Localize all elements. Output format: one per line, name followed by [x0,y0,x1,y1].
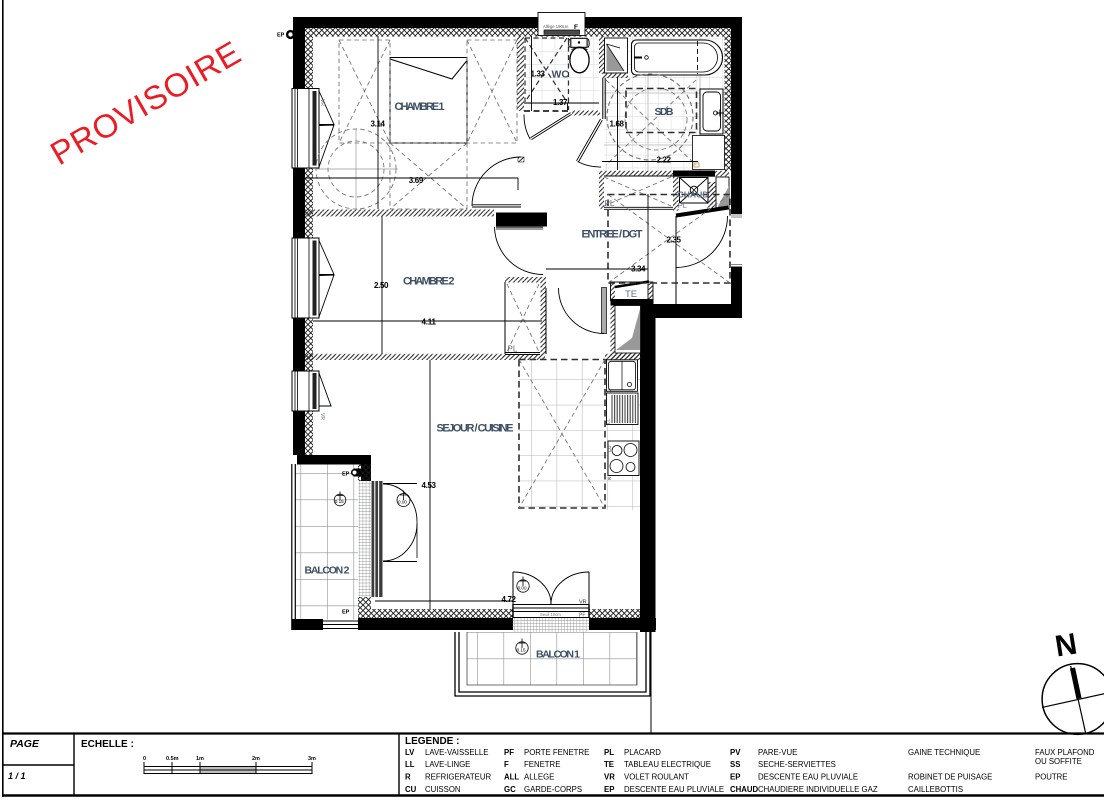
svg-text:DESCENTE EAU PLUVIALE: DESCENTE EAU PLUVIALE [758,773,858,782]
svg-text:3.34: 3.34 [631,265,646,274]
svg-text:VR: VR [579,600,587,606]
svg-text:3.14: 3.14 [371,120,386,129]
svg-text:BALCON 2: BALCON 2 [305,565,350,577]
svg-text:CUISSON: CUISSON [425,785,461,794]
svg-text:LAVE-VAISSELLE: LAVE-VAISSELLE [425,748,488,757]
svg-text:OU SOFFITE: OU SOFFITE [1035,757,1082,766]
svg-text:2.22: 2.22 [657,155,672,164]
svg-text:FAUX PLAFOND: FAUX PLAFOND [1035,748,1095,757]
svg-text:PL: PL [605,199,615,208]
svg-text:3m: 3m [308,756,316,762]
svg-text:CU: CU [607,446,612,453]
svg-text:1.68: 1.68 [610,120,625,129]
svg-text:ENTREE / DGT: ENTREE / DGT [582,229,643,241]
svg-text:1.33: 1.33 [531,70,546,79]
svg-text:PARE-VUE: PARE-VUE [758,748,797,757]
svg-text:SDB: SDB [655,106,674,118]
svg-text:GARDE-CORPS: GARDE-CORPS [524,785,582,794]
svg-text:TE: TE [625,289,637,300]
svg-text:WC: WC [552,69,570,81]
svg-text:CHAMBRE 2: CHAMBRE 2 [403,276,455,288]
svg-text:2m: 2m [252,756,260,762]
svg-text:Allège 190cm: Allège 190cm [543,24,569,29]
svg-text:VR: VR [319,99,325,106]
svg-text:EP: EP [604,785,614,794]
svg-text:EP: EP [730,773,740,782]
svg-text:0.00: 0.00 [518,585,527,590]
svg-text:TABLEAU ELECTRIQUE: TABLEAU ELECTRIQUE [624,760,711,769]
svg-text:4.72: 4.72 [502,595,517,604]
svg-text:PL: PL [604,748,614,757]
svg-text:PV: PV [730,748,741,757]
svg-text:VOLET ROULANT: VOLET ROULANT [624,773,689,782]
svg-text:EP: EP [342,610,350,616]
svg-text:PAGE: PAGE [10,738,40,750]
svg-text:CU: CU [405,785,417,794]
svg-text:1 / 1: 1 / 1 [8,771,26,781]
svg-text:LV: LV [405,748,415,757]
svg-text:PL: PL [678,201,687,210]
svg-text:3.69: 3.69 [409,176,424,185]
svg-text:PF: PF [504,748,514,757]
svg-text:GC: GC [504,785,516,794]
svg-text:ALLEGE: ALLEGE [524,773,554,782]
svg-text:CAILLEBOTTIS: CAILLEBOTTIS [908,785,963,794]
svg-text:DESCENTE EAU PLUVIALE: DESCENTE EAU PLUVIALE [624,785,724,794]
svg-text:F: F [504,760,509,769]
svg-text:BALCON 1: BALCON 1 [536,649,580,661]
svg-text:PLACARD: PLACARD [624,748,661,757]
svg-text:2.50: 2.50 [374,281,389,290]
svg-text:PORTE FENETRE: PORTE FENETRE [524,748,589,757]
svg-text:0.5m: 0.5m [166,756,179,762]
svg-text:0.15: 0.15 [517,647,526,652]
svg-text:GAINE TECHNIQUE: GAINE TECHNIQUE [908,748,980,757]
svg-text:0.00: 0.00 [398,500,407,505]
svg-text:REFRIGERATEUR: REFRIGERATEUR [425,773,492,782]
svg-text:ECHELLE :: ECHELLE : [81,739,134,750]
svg-text:PF: PF [579,613,585,619]
svg-text:TE: TE [604,760,614,769]
svg-text:Seuil 10cm: Seuil 10cm [540,612,561,617]
svg-text:CHAUD: CHAUD [730,785,759,794]
svg-text:2.35: 2.35 [667,236,682,245]
svg-text:LL: LL [606,418,611,424]
svg-text:PL: PL [508,345,518,354]
svg-text:4.11: 4.11 [422,318,437,327]
svg-text:POUTRE: POUTRE [1035,773,1068,782]
svg-text:SS: SS [730,760,740,769]
svg-text:R: R [405,773,411,782]
svg-text:CHAUDIERE INDIVIDUELLE GAZ: CHAUDIERE INDIVIDUELLE GAZ [758,785,878,794]
svg-text:0: 0 [143,756,146,762]
svg-text:4.53: 4.53 [422,481,437,490]
svg-text:SEJOUR / CUISINE: SEJOUR / CUISINE [437,423,514,435]
svg-text:EP: EP [277,33,285,39]
svg-text:VR: VR [604,773,615,782]
svg-text:LAVE-LINGE: LAVE-LINGE [425,760,470,769]
svg-text:1m: 1m [196,756,204,762]
svg-text:0.15: 0.15 [335,499,344,504]
svg-text:VR: VR [319,413,325,420]
svg-text:ROBINET DE PUISAGE: ROBINET DE PUISAGE [908,773,992,782]
svg-text:ALL: ALL [504,773,519,782]
svg-text:1.37: 1.37 [553,98,568,107]
svg-text:LL: LL [405,760,415,769]
svg-text:FENETRE: FENETRE [524,760,560,769]
svg-text:CHAMBRE 1: CHAMBRE 1 [395,101,445,113]
svg-text:EP: EP [342,472,350,478]
svg-text:CHAUD: CHAUD [678,190,709,200]
svg-text:LEGENDE :: LEGENDE : [405,736,459,747]
svg-text:SECHE-SERVIETTES: SECHE-SERVIETTES [758,760,836,769]
